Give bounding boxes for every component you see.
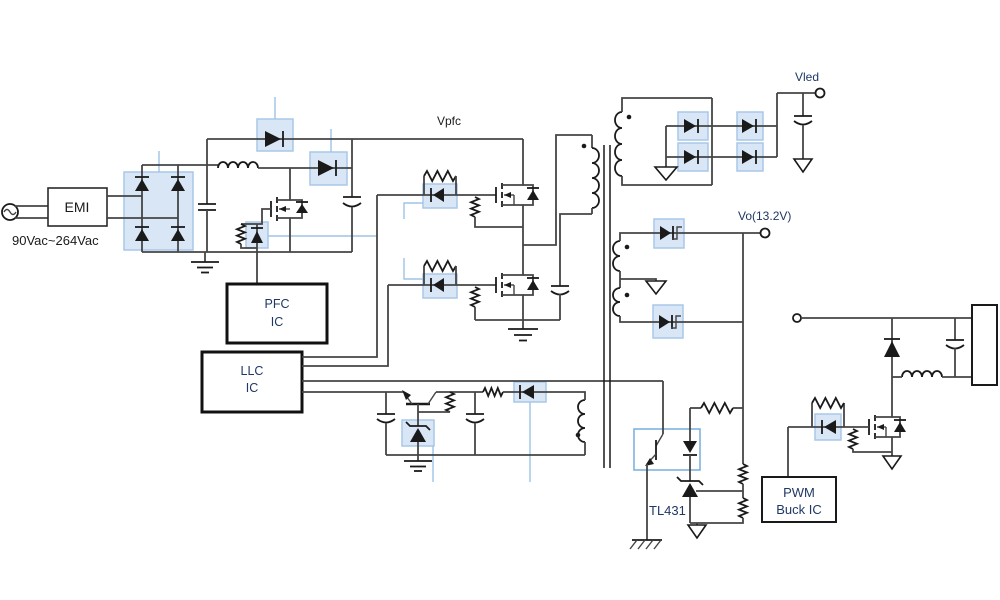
emi-label: EMI [65,199,90,215]
feedback-resistor [690,403,743,413]
llc-ground [508,320,538,341]
vled-rectifier-ground [655,157,677,180]
llc-low-gate-callout-line [404,258,423,279]
vcc-capacitor [377,392,395,455]
vo-label: Vo(13.2V) [738,209,791,223]
aux-winding [576,400,585,442]
schematic-page: EMI 90Vac~264Vac [0,0,1000,600]
llc-low-side-mosfet [496,245,539,320]
ac-input-label: 90Vac~264Vac [12,233,99,248]
led-load-block [972,305,997,385]
vo-upper-polarity-dot [625,245,630,250]
center-tap-ground [620,279,666,294]
bypass-diode-highlight [257,119,293,151]
primary-ground [191,252,219,273]
llc-ic-label-line2: IC [246,381,259,395]
boost-inductor [218,162,258,168]
raw-capacitor [466,392,484,455]
opto-emitter-ground [630,540,662,549]
pwm-label-line1: PWM [783,485,815,500]
vled-output-capacitor [794,93,812,172]
vled-terminal [816,89,825,98]
pfc-ic-block [227,284,327,343]
primary-polarity-dot [582,144,587,149]
buck-input-terminal [793,314,801,322]
schematic-canvas: EMI 90Vac~264Vac [0,0,1000,600]
tl431-label: TL431 [649,503,686,518]
vled-label: Vled [795,70,819,84]
tl431-ground [688,523,706,538]
resonant-capacitor [551,214,592,320]
pfc-mosfet [271,168,308,252]
pfc-ic-label-line2: IC [271,315,284,329]
input-capacitor [198,139,216,252]
buck-mosfet [869,377,906,452]
buck-source-ground [883,452,901,469]
llc-ic-label-line1: LLC [241,364,264,378]
primary-winding [582,135,599,214]
tl431-regulator [677,477,743,523]
vled-rectifier [622,93,816,185]
vo-lower-polarity-dot [625,293,630,298]
buck-inductor [892,371,972,377]
llc-high-side-mosfet [496,139,539,245]
freewheel-diode [884,318,900,377]
aux-winding-feed [546,392,585,400]
feedback-divider [690,462,747,523]
aux-polarity-dot [576,433,581,438]
pfc-ic-label-line1: PFC [265,297,290,311]
vled-polarity-dot [627,115,632,120]
transformer [576,112,632,468]
llc-high-gate-callout-line [404,203,423,219]
base-resistor [418,392,454,412]
vo-terminal [761,229,770,238]
vo-rectifier [620,226,760,329]
aux-ground [404,455,432,471]
pwm-label-line2: Buck IC [776,502,822,517]
vpfc-label: Vpfc [437,114,461,128]
buck-output-capacitor [946,318,964,377]
vled-secondary-winding [615,112,631,176]
